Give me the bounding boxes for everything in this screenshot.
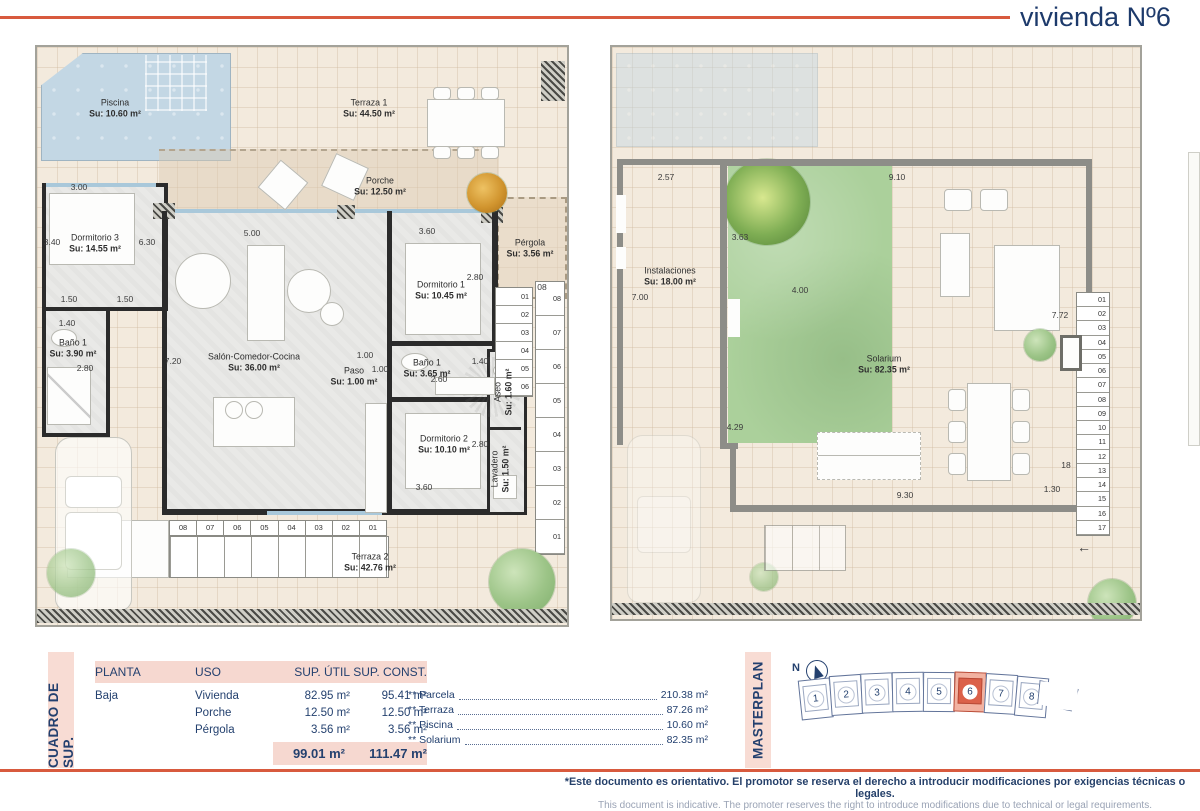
note-label: ** Solarium [408,733,461,748]
summary-totals: 99.01 m² 111.47 m² [95,742,427,765]
north-label: N [792,662,800,674]
sunbed [817,432,921,480]
sofa [940,233,970,297]
chair [481,87,499,100]
dimension: 9.10 [889,172,906,182]
floorplan-ground: 010203040506 0807060504030201 0807060504… [35,45,569,627]
parapet-wall [730,443,736,512]
dimension: 5.00 [244,228,261,238]
window-strip [162,209,494,213]
exterior-stair: 0807060504030201 [535,281,565,555]
parapet-wall [720,159,727,449]
dining-table [427,99,505,147]
section-label-masterplan: MASTERPLAN [745,652,771,768]
stair-step-number: 08 [169,520,197,536]
stair-step-number: 07 [197,520,224,536]
wall-opening [728,299,740,337]
stair-step-number: 02 [1077,307,1109,321]
pool-below [616,53,818,147]
stair-to-terraza2: 0807060504030201 [169,520,387,536]
masterplan-plot: 4 [892,672,925,713]
kitchen-counter [365,403,387,513]
wall [387,341,497,346]
note-line: ** Piscina 10.60 m² [408,718,708,733]
stair-step-number: 16 [1077,507,1109,521]
tree [1024,329,1056,361]
stair-step-number: 01 [536,520,564,554]
chair [1012,453,1030,475]
masterplan-strip: 1 2 3 4 5 6 7 8 [800,672,1048,712]
note-label: ** Terraza [408,703,454,718]
stair-step-number: 01 [1077,293,1109,307]
stair-step-number: 03 [536,452,564,486]
wall-fixture [1060,335,1082,371]
neighbor-plot-sliver [1188,152,1200,446]
chair [457,87,475,100]
dimension: 3.60 [419,226,436,236]
dimension: 1.00 [372,364,389,374]
disclaimer-es: *Este documento es orientativo. El promo… [545,776,1200,800]
room-label-piscina: PiscinaSu: 10.60 m² [89,98,141,121]
footer-rule [0,769,1200,772]
dimension: 1.40 [472,356,489,366]
chair [1012,421,1030,443]
cell-planta [95,705,195,722]
room-label-terraza1: Terraza 1Su: 44.50 m² [343,98,395,121]
stair-step-number: 06 [536,350,564,384]
stair-step-number: 09 [1077,407,1109,421]
dimension: 1.00 [357,350,374,360]
note-line: ** Terraza 87.26 m² [408,703,708,718]
summary-table-body: Baja Vivienda 82.95 m² 95.41 m² Porche 1… [95,688,427,739]
note-label: ** Piscina [408,718,453,733]
room-label-terraza2: Terraza 2Su: 42.76 m² [344,552,396,575]
dimension: 3.40 [44,237,61,247]
cell-uso: Vivienda [195,688,280,705]
dotted-leader [465,744,663,745]
disclaimer-en: This document is indicative. The promote… [545,800,1200,811]
stair-step-number: 02 [333,520,360,536]
stair-step-number: 03 [1077,321,1109,335]
stair-step-number: 04 [536,418,564,452]
col-header-uso: USO [195,665,280,679]
chair [948,389,966,411]
solarium-stair: 0102030405060708091011121314151617 [1076,292,1110,536]
dimension: 2.60 [431,374,448,384]
dimension: 3.00 [71,182,88,192]
car-roof [637,496,692,553]
chair [1012,389,1030,411]
stair-step-number: 01 [360,520,387,536]
dimension: 2.57 [658,172,675,182]
dimension: 7.20 [165,356,182,366]
chair [457,146,475,159]
note-value: 87.26 m² [667,703,708,718]
dimension: 2.80 [467,272,484,282]
room-label-salon: Salón-Comedor-CocinaSu: 36.00 m² [208,352,300,375]
total-const: 111.47 m² [345,746,427,761]
sink [225,401,243,419]
dimension: 2.80 [77,363,94,373]
note-value: 10.60 m² [667,718,708,733]
dimension: 7.72 [1052,310,1069,320]
stair-step-number: 06 [224,520,251,536]
room-label-aseo: AseoSu: 1.60 m² [493,369,516,416]
plot-number: 5 [930,683,947,700]
dimension: 1.50 [117,294,134,304]
boundary-wall [612,603,1140,615]
dotted-leader [457,729,663,730]
room-label-paso: PasoSu: 1.00 m² [331,366,378,389]
header-rule [0,16,1010,19]
stair-step-number: 02 [496,306,532,324]
room-label-pergola: PérgolaSu: 3.56 m² [507,238,554,261]
stair-step-number: 07 [536,316,564,350]
dimension: 08 [537,282,546,292]
stair-step-number: 02 [536,486,564,520]
room-label-lavadero: LavaderoSu: 1.50 m² [490,446,513,493]
col-header-sup-util: SUP. ÚTIL [280,665,350,679]
stair-step-number: 03 [496,324,532,342]
parapet-wall [730,505,1092,512]
floorplan-solarium: 0102030405060708091011121314151617 ← Ins… [610,45,1142,621]
table-row: Baja Vivienda 82.95 m² 95.41 m² [95,688,427,705]
sink [245,401,263,419]
chair [481,146,499,159]
cell-util: 12.50 m² [280,705,350,722]
masterplan-plot: 7 [984,673,1018,715]
note-value: 210.38 m² [661,688,708,703]
chair [433,146,451,159]
note-label: ** Parcela [408,688,455,703]
room-label-solarium: SolariumSu: 82.35 m² [858,354,910,377]
masterplan-plot: 2 [829,674,864,716]
room-label-dormitorio1: Dormitorio 1Su: 10.45 m² [415,280,467,303]
cell-uso: Porche [195,705,280,722]
dining-table [967,383,1011,481]
total-util: 99.01 m² [273,746,345,761]
table-row: Porche 12.50 m² 12.50 m² [95,705,427,722]
chair [944,189,972,211]
page-title: vivienda Nº6 [1020,2,1171,33]
window-strip [46,183,156,187]
disclaimer: *Este documento es orientativo. El promo… [545,776,1200,811]
stair-step-number: 15 [1077,492,1109,506]
col-header-sup-const: SUP. CONST. [350,665,427,679]
stair-below [764,525,846,571]
dotted-leader [458,714,663,715]
stair-step-number: 12 [1077,450,1109,464]
pool-steps [145,55,207,111]
chair [433,87,451,100]
cell-uso: Pérgola [195,722,280,739]
stair-step-number: 05 [536,384,564,418]
masterplan-plot: 1 [798,677,834,720]
dimension: 4.29 [727,422,744,432]
stair-step-number: 04 [496,342,532,360]
dimension: 9.30 [897,490,914,500]
stair-step-number: 10 [1077,421,1109,435]
tree [47,549,95,597]
stair-step-number: 17 [1077,521,1109,535]
col-header-planta: PLANTA [95,665,195,679]
cell-planta: Baja [95,688,195,705]
car-windshield [65,476,122,508]
stair-step-number: 01 [496,288,532,306]
chair [948,421,966,443]
stair-step-number: 08 [1077,393,1109,407]
summary-table-header: PLANTA USO SUP. ÚTIL SUP. CONST. [95,661,427,683]
dimension: 1.50 [61,294,78,304]
wall [487,427,521,430]
cell-util: 82.95 m² [280,688,350,705]
stair-step-number: 05 [251,520,278,536]
stair-step-number: 11 [1077,435,1109,449]
dimension: 1.40 [59,318,76,328]
shower [47,367,91,425]
dimension: 3.60 [416,482,433,492]
dimension: 4.00 [792,285,809,295]
dimension: 18 [1061,460,1070,470]
cell-planta [95,722,195,739]
note-line: ** Solarium 82.35 m² [408,733,708,748]
chair [948,453,966,475]
instalaciones-window [616,247,626,269]
table-row: Pérgola 3.56 m² 3.56 m² [95,722,427,739]
round-table [175,253,231,309]
wall-column [337,205,355,219]
boundary-wall [37,609,567,623]
stair-step-number: 07 [1077,378,1109,392]
side-table [320,302,344,326]
instalaciones-window [616,195,626,233]
cell-util: 3.56 m² [280,722,350,739]
room-label-instalaciones: InstalacionesSu: 18.00 m² [644,266,696,289]
dimension: 6.30 [139,237,156,247]
dimension: 2.80 [472,439,489,449]
summary-notes: ** Parcela 210.38 m² ** Terraza 87.26 m²… [408,688,708,748]
sofa [247,245,285,341]
note-value: 82.35 m² [667,733,708,748]
stair-step-number: 03 [306,520,333,536]
room-label-bano1-left: Baño 1Su: 3.90 m² [50,338,97,361]
stair-step-number: 13 [1077,464,1109,478]
masterplan-plot: 3 [860,672,894,713]
coffee-table [994,245,1060,331]
tree [467,173,507,213]
chair [980,189,1008,211]
room-label-porche: PorcheSu: 12.50 m² [354,176,406,199]
masterplan-plot: 6 [953,671,986,712]
stair-arrow: ← [1077,539,1091,555]
room-label-dormitorio2: Dormitorio 2Su: 10.10 m² [418,434,470,457]
parapet-wall [720,159,1092,166]
car-faint [627,435,701,603]
note-line: ** Parcela 210.38 m² [408,688,708,703]
parapet-wall [617,159,727,165]
dimension: 1.30 [1044,484,1061,494]
neighbor-wall [541,61,565,101]
tree [489,549,555,615]
dotted-leader [459,699,657,700]
masterplan-plot: 5 [923,672,955,712]
dimension: 7.00 [632,292,649,302]
dimension: 3.63 [732,232,749,242]
stair-step-number: 04 [279,520,306,536]
stair-step-number: 14 [1077,478,1109,492]
section-label-cuadro: CUADRO DE SUP. [48,652,74,768]
wall [387,211,392,515]
room-label-dormitorio3: Dormitorio 3Su: 14.55 m² [69,233,121,256]
